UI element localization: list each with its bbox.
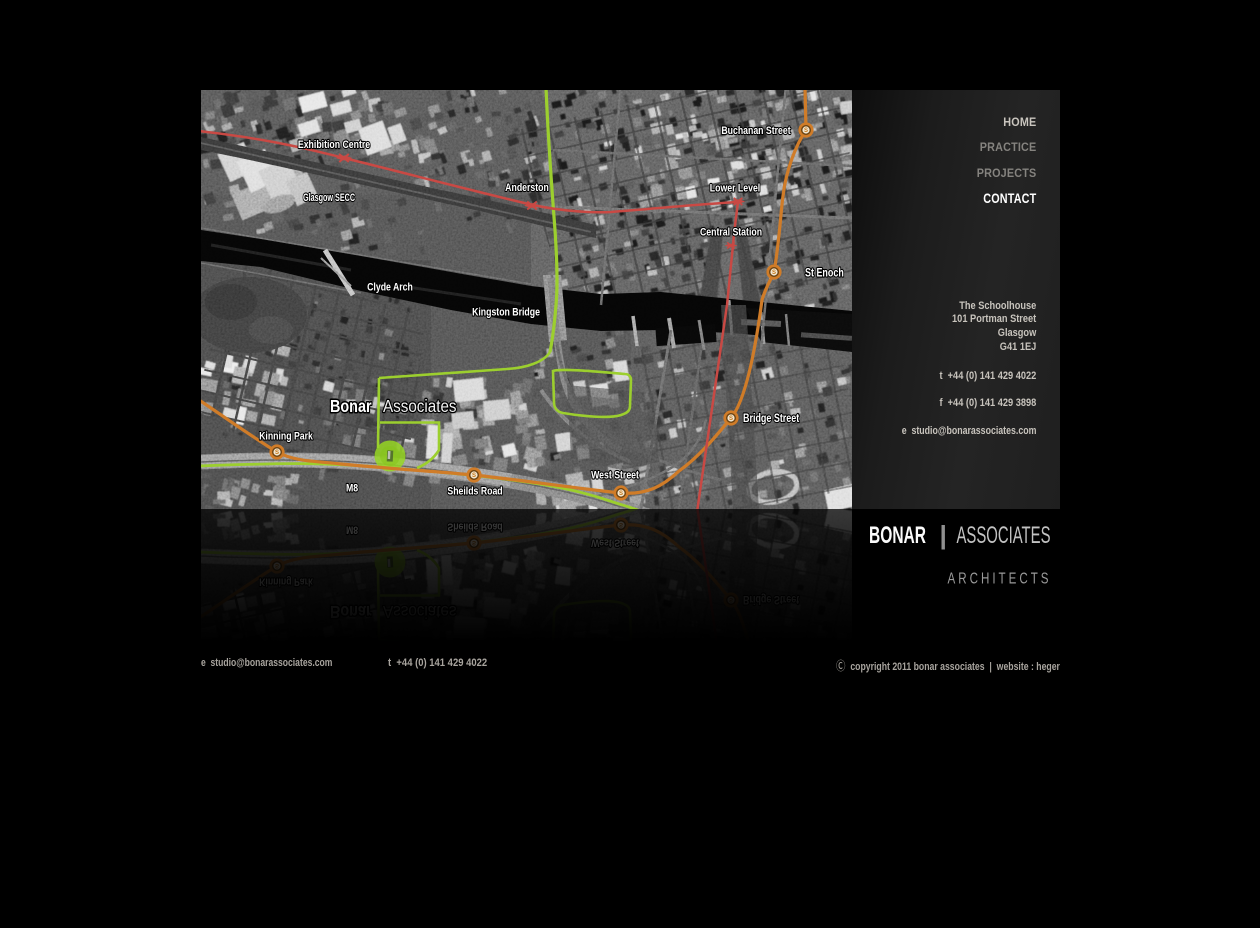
svg-text:S: S: [275, 450, 279, 456]
svg-text:BONAR: BONAR: [869, 522, 926, 549]
svg-text:Bridge Street: Bridge Street: [743, 413, 800, 425]
svg-text:Kingston Bridge: Kingston Bridge: [472, 307, 540, 319]
svg-text:ASSOCIATES: ASSOCIATES: [957, 522, 1051, 549]
svg-text:Sheilds Road: Sheilds Road: [447, 486, 502, 498]
svg-text:Lower Level: Lower Level: [710, 183, 761, 195]
svg-text:Exhibition Centre: Exhibition Centre: [298, 139, 371, 151]
svg-text:S: S: [619, 491, 623, 497]
svg-text:St Enoch: St Enoch: [805, 268, 844, 280]
svg-text:Bonar: Bonar: [330, 397, 372, 417]
svg-text:Central Station: Central Station: [700, 227, 762, 239]
svg-text:S: S: [772, 270, 776, 276]
svg-text:S: S: [804, 128, 808, 134]
svg-text:Clyde Arch: Clyde Arch: [367, 282, 413, 294]
svg-text:Kinning Park: Kinning Park: [259, 431, 313, 443]
svg-text:Anderston: Anderston: [505, 182, 549, 194]
svg-text:ARCHITECTS: ARCHITECTS: [948, 571, 1052, 588]
svg-text:S: S: [729, 416, 733, 422]
svg-text:West Street: West Street: [591, 470, 639, 482]
svg-text:Buchanan Street: Buchanan Street: [721, 125, 791, 137]
svg-text:Associates: Associates: [383, 396, 457, 417]
svg-text:M8: M8: [346, 483, 358, 495]
svg-text:S: S: [472, 473, 476, 479]
svg-text:Glasgow SECC: Glasgow SECC: [303, 190, 355, 203]
